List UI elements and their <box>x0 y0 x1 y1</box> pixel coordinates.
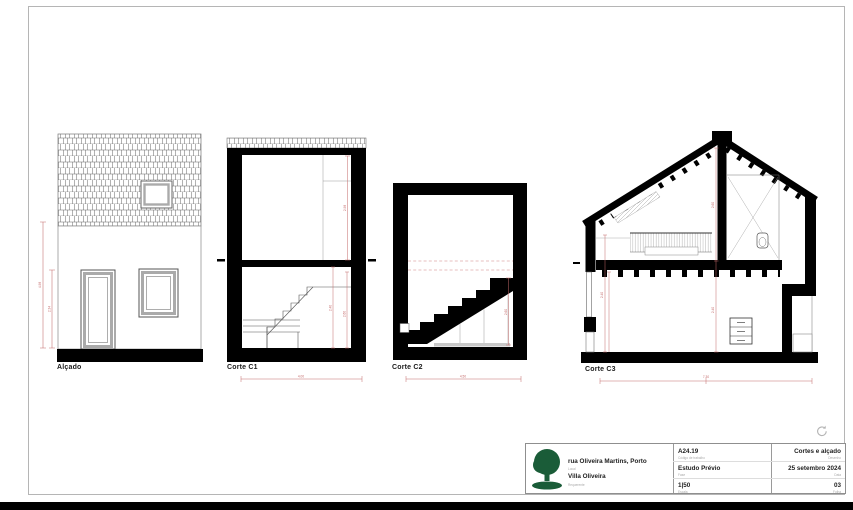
olive-tree-logo-icon <box>530 447 566 492</box>
sheet-number-label: Folha <box>833 490 841 494</box>
dim-c3-width: 7.30 <box>703 375 709 379</box>
sheet-title: Cortes e alçado <box>794 448 841 455</box>
roof-window <box>141 181 172 208</box>
scale-label: Escala <box>678 490 688 494</box>
title-block: rua Oliveira Martins, Porto Local Villa … <box>525 443 846 494</box>
phase: Estudo Prévio <box>678 465 720 472</box>
scale: 1|50 <box>678 482 690 489</box>
project-name-label: Requerente <box>568 483 585 487</box>
titleblock-divider <box>771 444 772 493</box>
dim-alcado-door: 2.34 <box>48 306 52 312</box>
sheet-number: 03 <box>834 482 841 489</box>
dim-c1-lower-b: 2.60 <box>343 311 347 317</box>
dim-c1-width: 4.00 <box>298 375 304 379</box>
titleblock-divider <box>673 444 674 493</box>
c3-stair-railing <box>596 233 712 255</box>
dim-c2-stair: 2.60 <box>504 309 508 315</box>
dim-c1-lower-a: 2.40 <box>329 305 333 311</box>
dim-alcado-total: 4.98 <box>38 282 42 288</box>
corte-c3-drawing: 2.60 2.40 2.40 7.30 <box>573 131 818 384</box>
phase-label: Fase <box>678 473 685 477</box>
titleblock-row-line <box>673 478 845 479</box>
corte-c2-drawing: 2.60 4.50 <box>393 183 527 382</box>
job-code-label: Código de trabalho <box>678 456 705 460</box>
c2-first-step <box>400 324 409 333</box>
rotate-icon[interactable] <box>815 424 829 438</box>
project-address: rua Oliveira Martins, Porto <box>568 458 647 465</box>
c3-bathroom <box>727 175 779 260</box>
bottom-bar <box>0 502 853 510</box>
c3-counter <box>793 334 812 352</box>
titleblock-row-line <box>673 461 845 462</box>
drawings-canvas: 4.98 2.34 2.98 2.40 2.60 4.00 <box>0 0 853 510</box>
corte-c3-label: Corte C3 <box>585 366 616 373</box>
sheet-date-label: Data <box>834 473 841 477</box>
project-name: Villa Oliveira <box>568 473 606 480</box>
job-code: A24.19 <box>678 448 698 455</box>
dim-c2-width: 4.50 <box>460 375 466 379</box>
alcado-drawing: 4.98 2.34 <box>38 134 203 362</box>
sheet-date: 25 setembro 2024 <box>788 465 841 472</box>
ground-slab <box>57 349 203 362</box>
alcado-label: Alçado <box>57 364 82 371</box>
entry-door <box>81 270 115 349</box>
dim-c1-upper: 2.98 <box>343 205 347 211</box>
corte-c2-label: Corte C2 <box>392 364 423 371</box>
project-address-label: Local <box>568 467 576 471</box>
corte-c1-drawing: 2.98 2.40 2.60 4.00 <box>217 138 376 382</box>
alcado-dimensions <box>40 222 55 348</box>
facade-window <box>139 269 178 317</box>
c3-drawer-cabinet <box>730 318 752 344</box>
dim-c3-left: 2.40 <box>600 292 604 298</box>
dim-c3-lower: 2.40 <box>711 307 715 313</box>
sheet-title-label: Desenho <box>828 456 841 460</box>
dim-c3-upper: 2.60 <box>711 202 715 208</box>
corte-c1-label: Corte C1 <box>227 364 258 371</box>
